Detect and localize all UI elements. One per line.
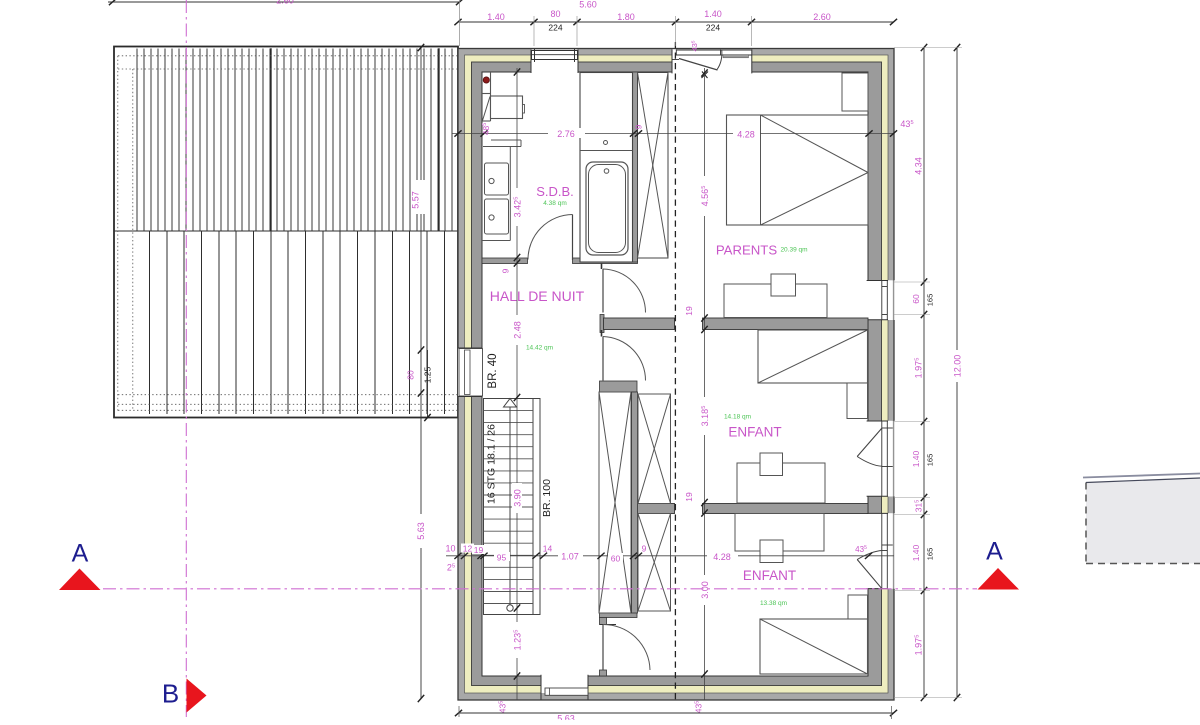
svg-text:165: 165 bbox=[926, 454, 935, 467]
svg-text:HALL DE NUIT: HALL DE NUIT bbox=[490, 288, 585, 304]
svg-text:5.57: 5.57 bbox=[411, 191, 421, 209]
svg-text:9: 9 bbox=[642, 544, 647, 554]
svg-text:12.00: 12.00 bbox=[953, 355, 963, 378]
svg-text:2.60: 2.60 bbox=[813, 12, 831, 22]
svg-text:19: 19 bbox=[684, 492, 694, 502]
svg-text:BR. 40: BR. 40 bbox=[487, 353, 499, 388]
svg-text:1.40: 1.40 bbox=[487, 12, 505, 22]
svg-text:165: 165 bbox=[926, 294, 935, 307]
svg-text:224: 224 bbox=[548, 23, 562, 33]
svg-text:12: 12 bbox=[463, 544, 473, 554]
svg-text:5.60: 5.60 bbox=[579, 0, 597, 10]
svg-text:4.28: 4.28 bbox=[713, 552, 731, 562]
svg-text:13.38 qm: 13.38 qm bbox=[760, 600, 787, 607]
svg-text:14.18 qm: 14.18 qm bbox=[724, 414, 751, 421]
svg-text:224: 224 bbox=[706, 23, 720, 33]
svg-text:3.00: 3.00 bbox=[700, 581, 710, 599]
svg-text:2.48: 2.48 bbox=[513, 321, 523, 339]
svg-text:19: 19 bbox=[474, 545, 484, 555]
svg-text:80: 80 bbox=[406, 370, 416, 380]
svg-text:ENFANT: ENFANT bbox=[743, 568, 796, 583]
svg-text:16 STG 18.1 / 26: 16 STG 18.1 / 26 bbox=[486, 424, 498, 504]
svg-text:4.28: 4.28 bbox=[737, 130, 755, 140]
svg-text:4.38 qm: 4.38 qm bbox=[543, 200, 567, 207]
svg-text:5.63: 5.63 bbox=[557, 714, 575, 721]
svg-text:20.39 qm: 20.39 qm bbox=[780, 247, 807, 254]
svg-text:14: 14 bbox=[543, 544, 553, 554]
svg-text:ENFANT: ENFANT bbox=[728, 425, 781, 440]
svg-text:60: 60 bbox=[611, 554, 621, 564]
svg-text:10: 10 bbox=[445, 544, 455, 554]
svg-text:S.D.B.: S.D.B. bbox=[536, 184, 574, 199]
svg-text:1.07: 1.07 bbox=[561, 552, 579, 562]
svg-text:1.40: 1.40 bbox=[911, 450, 921, 467]
svg-text:A: A bbox=[72, 540, 89, 568]
svg-text:14.42 qm: 14.42 qm bbox=[526, 345, 553, 352]
svg-text:2.76: 2.76 bbox=[557, 129, 575, 139]
svg-text:95: 95 bbox=[497, 553, 507, 563]
svg-text:A: A bbox=[986, 538, 1003, 566]
svg-text:80: 80 bbox=[550, 9, 560, 19]
svg-text:1.40: 1.40 bbox=[704, 9, 722, 19]
svg-text:B: B bbox=[162, 679, 179, 709]
svg-text:BR. 100: BR. 100 bbox=[541, 479, 553, 517]
svg-text:9: 9 bbox=[634, 124, 644, 129]
svg-text:PARENTS: PARENTS bbox=[716, 243, 778, 258]
svg-text:2.60: 2.60 bbox=[276, 0, 294, 6]
svg-text:1.40: 1.40 bbox=[911, 544, 921, 561]
svg-text:4.34: 4.34 bbox=[914, 157, 924, 175]
svg-text:19: 19 bbox=[684, 306, 694, 316]
svg-text:1.25: 1.25 bbox=[423, 366, 433, 383]
svg-text:165: 165 bbox=[926, 548, 935, 561]
svg-text:3.90: 3.90 bbox=[513, 489, 523, 507]
svg-text:60: 60 bbox=[911, 294, 921, 304]
svg-text:1.80: 1.80 bbox=[617, 12, 635, 22]
svg-text:9: 9 bbox=[501, 268, 511, 273]
svg-text:5.63: 5.63 bbox=[416, 522, 426, 540]
